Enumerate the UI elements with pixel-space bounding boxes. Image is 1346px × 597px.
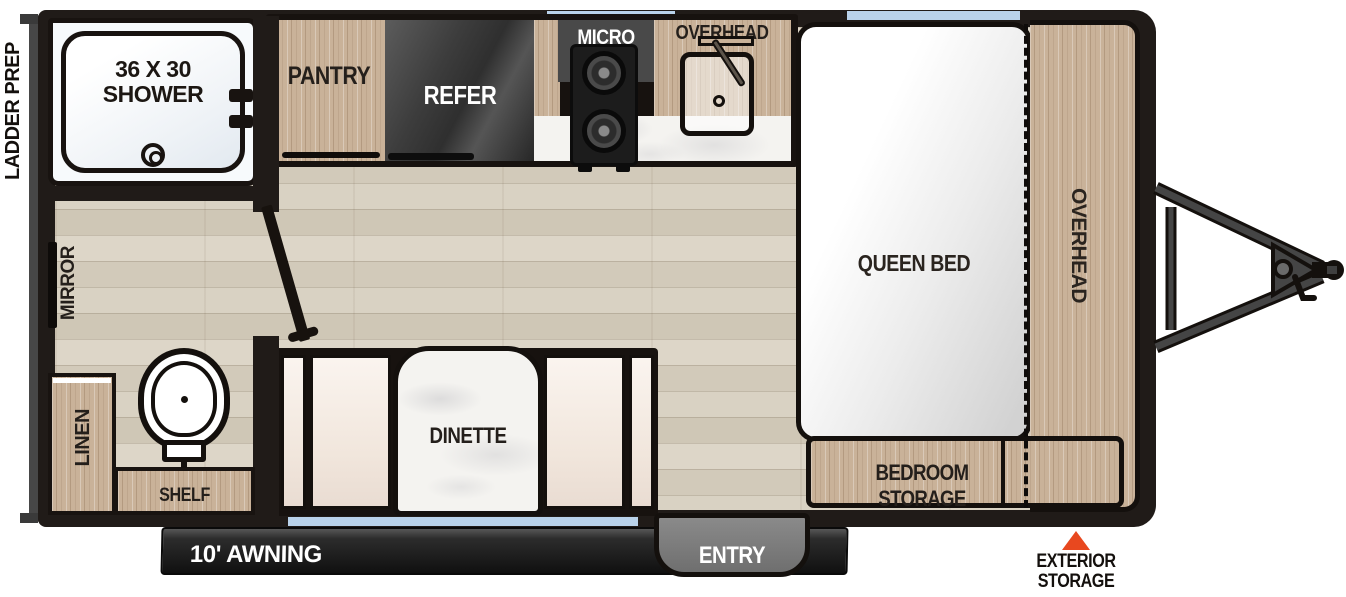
rear-bumper-bracket: [20, 513, 38, 523]
shower-enclosure: 36 X 30 SHOWER: [48, 18, 258, 186]
entry-door-marker: ENTRY: [654, 513, 810, 577]
linen-cabinet: LINEN: [48, 373, 116, 515]
exterior-storage-label: STORAGE: [1023, 572, 1128, 592]
shower-drain-icon: [141, 143, 165, 167]
bathroom-wall: [253, 16, 279, 212]
bedroom-storage: BEDROOM STORAGE: [806, 436, 1124, 508]
bathroom-wall: [253, 336, 279, 516]
dinette-cushion: [629, 355, 654, 509]
floorplan-canvas: LADDER PREP 36 X 30 SHOWER MIRROR: [0, 0, 1346, 597]
mirror-label: MIRROR: [58, 246, 80, 320]
awning-label: 10' AWNING: [190, 541, 322, 569]
pantry-label: PANTRY: [281, 62, 376, 91]
entry-label: ENTRY: [670, 542, 794, 570]
refrigerator-handle: [388, 153, 474, 160]
cooktop: [570, 44, 638, 166]
toilet-base: [162, 440, 206, 462]
ladder-prep-label: LADDER PREP: [2, 26, 25, 180]
toilet: [138, 348, 230, 466]
rear-bumper-bracket: [20, 14, 38, 24]
linen-label: LINEN: [72, 409, 95, 467]
window: [847, 11, 1020, 20]
refrigerator: REFER: [385, 20, 535, 161]
sink-drain-icon: [713, 95, 725, 107]
trailer-hitch: [1146, 176, 1346, 368]
shower-label: 36 X 30 SHOWER: [53, 57, 253, 107]
dinette-cushion: [281, 355, 306, 509]
kitchen-sink: [680, 52, 754, 136]
dinette-label: DINETTE: [409, 423, 528, 449]
dinette-table: DINETTE: [393, 346, 543, 516]
shower-valve-icon: [229, 89, 253, 102]
stove-burner-icon: [582, 51, 626, 95]
cabinet-panel: [534, 20, 560, 116]
dinette-bench-left: [310, 355, 391, 509]
pantry-handle: [282, 152, 380, 158]
shower-valve-icon: [229, 115, 253, 128]
stove-burner-icon: [582, 109, 626, 153]
exterior-storage-marker: EXTERIOR STORAGE: [1014, 531, 1138, 592]
bed-slide-dashed-line: [1024, 24, 1028, 508]
bedroom-overhead-label: OVERHEAD: [1066, 188, 1090, 303]
pantry-cabinet: PANTRY: [273, 20, 385, 161]
bedroom-storage-label: BEDROOM STORAGE: [831, 460, 1013, 512]
exterior-storage-label: EXTERIOR: [1023, 552, 1128, 572]
dinette-bench-right: [544, 355, 625, 509]
bathroom-wall: [48, 186, 255, 201]
queen-bed-label: QUEEN BED: [818, 250, 1010, 277]
queen-bed: QUEEN BED: [796, 22, 1032, 442]
window: [288, 517, 638, 526]
refrigerator-label: REFER: [396, 80, 524, 111]
shelf: SHELF: [114, 467, 255, 515]
shelf-label: SHELF: [128, 485, 241, 507]
mirror: [48, 242, 57, 328]
sink-faucet-base: [698, 36, 754, 46]
kitchen-cabinet-run: PANTRY REFER MICRO OVERHEAD: [266, 14, 798, 167]
tongue-jack: [1275, 261, 1291, 277]
exterior-storage-triangle-icon: [1062, 531, 1090, 550]
